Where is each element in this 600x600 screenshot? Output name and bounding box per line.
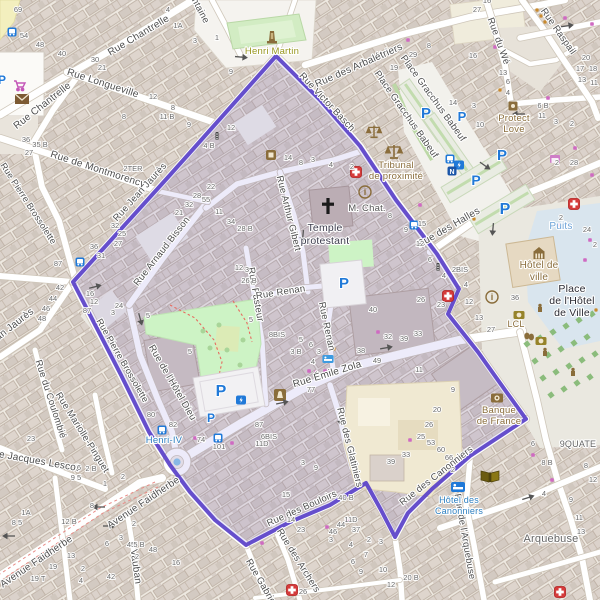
svg-text:17: 17 [576, 64, 584, 73]
svg-text:Hôtel des: Hôtel des [439, 495, 479, 505]
svg-text:Tribunal: Tribunal [378, 160, 414, 171]
svg-text:80: 80 [147, 410, 155, 419]
svg-text:31: 31 [97, 251, 105, 260]
svg-text:14: 14 [284, 153, 292, 162]
svg-text:Temple: Temple [307, 222, 342, 234]
svg-text:10: 10 [476, 120, 484, 129]
svg-text:Love: Love [503, 124, 524, 135]
svg-text:87: 87 [83, 306, 91, 315]
svg-text:4: 4 [311, 357, 315, 366]
svg-text:87: 87 [255, 420, 263, 429]
svg-text:Place: Place [558, 283, 585, 295]
svg-text:48: 48 [149, 545, 157, 554]
svg-text:5 B: 5 B [133, 540, 144, 549]
svg-text:22: 22 [207, 182, 215, 191]
svg-text:8: 8 [584, 461, 588, 470]
svg-text:2: 2 [132, 519, 136, 528]
svg-text:21: 21 [98, 63, 106, 72]
svg-text:38: 38 [357, 346, 365, 355]
svg-text:42: 42 [107, 572, 115, 581]
svg-text:29: 29 [409, 50, 417, 59]
svg-text:9: 9 [314, 463, 318, 472]
svg-text:28: 28 [193, 191, 201, 200]
svg-text:12: 12 [90, 297, 98, 306]
svg-text:9: 9 [451, 385, 455, 394]
svg-text:37: 37 [352, 525, 360, 534]
svg-text:3: 3 [311, 155, 315, 164]
svg-text:13: 13 [577, 527, 585, 536]
svg-text:8: 8 [388, 211, 392, 220]
svg-text:12: 12 [416, 239, 424, 248]
svg-text:2: 2 [451, 465, 455, 474]
svg-text:4 B: 4 B [203, 141, 214, 150]
svg-text:6: 6 [77, 463, 81, 472]
svg-text:P: P [471, 172, 480, 188]
svg-text:15: 15 [282, 490, 290, 499]
svg-text:4: 4 [542, 489, 546, 498]
svg-text:2: 2 [570, 119, 574, 128]
svg-text:11: 11 [538, 111, 546, 120]
svg-text:LCL: LCL [507, 319, 524, 329]
svg-text:13: 13 [475, 313, 483, 322]
svg-text:3: 3 [554, 117, 558, 126]
svg-text:11D: 11D [344, 515, 358, 524]
svg-text:1A: 1A [173, 21, 182, 30]
svg-text:de l'Hôtel: de l'Hôtel [549, 295, 594, 307]
svg-text:39: 39 [400, 334, 408, 343]
svg-text:20 B: 20 B [403, 573, 418, 582]
svg-text:Canonniers: Canonniers [435, 506, 483, 516]
svg-text:66: 66 [445, 453, 453, 462]
svg-text:de Ville: de Ville [554, 307, 590, 319]
svg-text:11D: 11D [255, 439, 269, 448]
svg-text:8 5: 8 5 [12, 518, 22, 527]
svg-text:35 B: 35 B [32, 140, 47, 149]
svg-text:26: 26 [425, 420, 433, 429]
svg-text:9QUATE: 9QUATE [560, 439, 597, 449]
svg-text:2: 2 [593, 240, 597, 249]
svg-text:3: 3 [379, 537, 383, 546]
svg-text:12: 12 [227, 123, 235, 132]
svg-text:5: 5 [146, 311, 150, 320]
svg-text:Protect: Protect [498, 113, 530, 124]
svg-text:15: 15 [418, 219, 426, 228]
svg-text:2TER: 2TER [123, 164, 143, 173]
svg-text:40: 40 [369, 305, 377, 314]
svg-text:P: P [500, 201, 511, 218]
svg-text:25: 25 [417, 432, 425, 441]
svg-text:19 T: 19 T [31, 574, 46, 583]
svg-text:9: 9 [187, 120, 191, 129]
svg-text:33: 33 [402, 450, 410, 459]
svg-text:4: 4 [349, 540, 353, 549]
svg-text:9: 9 [229, 67, 233, 76]
svg-text:16: 16 [483, 0, 491, 5]
svg-text:2 B: 2 B [85, 464, 96, 473]
svg-text:3: 3 [245, 265, 249, 274]
svg-text:3: 3 [193, 36, 197, 45]
svg-text:13: 13 [499, 68, 507, 77]
svg-text:P: P [216, 383, 227, 400]
svg-text:3: 3 [317, 347, 321, 356]
svg-text:P: P [421, 105, 431, 122]
svg-text:27: 27 [25, 148, 33, 157]
svg-text:12: 12 [387, 580, 395, 589]
svg-text:12: 12 [465, 297, 473, 306]
svg-text:28 B: 28 B [237, 224, 252, 233]
svg-text:82: 82 [169, 420, 177, 429]
svg-text:2: 2 [367, 535, 371, 544]
svg-text:5: 5 [188, 347, 192, 356]
svg-text:P: P [458, 109, 467, 124]
svg-text:19: 19 [390, 63, 398, 72]
svg-text:4: 4 [329, 160, 333, 169]
svg-text:9: 9 [569, 495, 573, 504]
svg-text:2: 2 [350, 162, 354, 171]
svg-text:12: 12 [589, 475, 597, 484]
svg-text:11: 11 [415, 365, 423, 374]
svg-text:P: P [0, 73, 6, 87]
svg-text:3 B: 3 B [290, 347, 301, 356]
svg-text:1: 1 [215, 33, 219, 42]
svg-text:46: 46 [329, 527, 337, 536]
svg-text:12 B: 12 B [61, 517, 76, 526]
svg-text:i: i [364, 187, 367, 197]
svg-text:3: 3 [472, 101, 476, 110]
svg-text:48: 48 [38, 314, 46, 323]
svg-text:1: 1 [103, 479, 107, 488]
svg-text:6: 6 [351, 557, 355, 566]
svg-text:11: 11 [575, 513, 583, 522]
svg-text:3: 3 [301, 458, 305, 467]
svg-text:Henri Martin: Henri Martin [245, 46, 299, 57]
svg-text:87: 87 [54, 259, 62, 268]
svg-text:11: 11 [215, 207, 223, 216]
svg-text:8: 8 [171, 103, 175, 112]
svg-text:P: P [339, 275, 349, 292]
svg-text:2BIS: 2BIS [452, 265, 468, 274]
svg-text:6: 6 [309, 340, 313, 349]
svg-text:2: 2 [121, 472, 125, 481]
svg-text:77: 77 [307, 385, 315, 394]
svg-text:N: N [449, 169, 454, 176]
svg-text:2: 2 [559, 213, 563, 222]
svg-text:4: 4 [79, 576, 83, 585]
svg-text:ville: ville [530, 272, 548, 283]
svg-text:8: 8 [299, 158, 303, 167]
svg-text:13: 13 [578, 75, 586, 84]
svg-text:13: 13 [67, 551, 75, 560]
svg-text:de proximité: de proximité [369, 171, 423, 182]
svg-text:7: 7 [364, 550, 368, 559]
svg-text:32: 32 [384, 332, 392, 341]
svg-text:14: 14 [449, 98, 457, 107]
svg-text:18: 18 [589, 64, 597, 73]
svg-text:69: 69 [14, 5, 22, 14]
svg-text:53: 53 [427, 438, 435, 447]
svg-text:36: 36 [90, 242, 98, 251]
svg-text:5: 5 [249, 315, 253, 324]
svg-text:55: 55 [202, 195, 210, 204]
svg-text:M. Chat.: M. Chat. [348, 203, 386, 214]
svg-text:19: 19 [49, 562, 57, 571]
svg-text:33: 33 [414, 329, 422, 338]
svg-text:9: 9 [359, 567, 363, 576]
svg-text:11 B: 11 B [160, 112, 175, 121]
svg-text:39: 39 [387, 457, 395, 466]
svg-text:101: 101 [213, 442, 226, 451]
svg-text:6: 6 [506, 77, 510, 86]
svg-text:Arquebuse: Arquebuse [523, 533, 578, 545]
svg-text:48: 48 [36, 40, 44, 49]
svg-text:Banque: Banque [482, 405, 516, 416]
svg-text:44: 44 [49, 294, 57, 303]
svg-text:16: 16 [172, 558, 180, 567]
svg-text:24: 24 [115, 301, 123, 310]
svg-text:de France: de France [477, 416, 522, 427]
svg-text:9: 9 [404, 225, 408, 234]
svg-text:49: 49 [373, 356, 381, 365]
svg-text:14: 14 [287, 515, 295, 524]
svg-text:4: 4 [506, 88, 510, 97]
svg-text:46: 46 [42, 304, 50, 313]
svg-text:25: 25 [118, 229, 126, 238]
svg-text:20: 20 [582, 53, 590, 62]
svg-text:i: i [491, 292, 494, 302]
svg-text:8: 8 [427, 41, 431, 50]
svg-text:1A: 1A [21, 508, 30, 517]
svg-text:8: 8 [122, 112, 126, 121]
svg-text:protestant: protestant [301, 235, 350, 247]
svg-text:3: 3 [329, 535, 333, 544]
svg-text:8BIS: 8BIS [269, 330, 285, 339]
svg-text:54: 54 [20, 31, 28, 40]
svg-text:4: 4 [442, 271, 446, 280]
svg-text:P: P [497, 147, 507, 164]
svg-text:Hôtel de: Hôtel de [520, 260, 559, 271]
svg-text:2: 2 [81, 564, 85, 573]
svg-text:44: 44 [337, 520, 345, 529]
svg-text:16: 16 [469, 51, 477, 60]
svg-text:36: 36 [22, 135, 30, 144]
svg-text:8 B: 8 B [541, 458, 552, 467]
svg-text:Henri-IV: Henri-IV [146, 435, 183, 446]
svg-text:10: 10 [379, 565, 387, 574]
svg-text:27: 27 [487, 325, 495, 334]
svg-text:74: 74 [197, 435, 205, 444]
svg-text:26 B: 26 B [241, 276, 256, 285]
svg-text:26: 26 [417, 295, 425, 304]
svg-text:32: 32 [185, 200, 193, 209]
svg-text:6 B: 6 B [537, 101, 548, 110]
svg-text:27: 27 [114, 239, 122, 248]
svg-text:4: 4 [166, 5, 170, 14]
svg-text:6: 6 [531, 439, 535, 448]
svg-text:42: 42 [56, 283, 64, 292]
svg-text:28: 28 [570, 158, 578, 167]
svg-text:Puits: Puits [549, 221, 572, 232]
svg-text:3: 3 [119, 533, 123, 542]
svg-text:P: P [207, 411, 215, 425]
svg-text:40: 40 [58, 49, 66, 58]
svg-text:6: 6 [105, 539, 109, 548]
svg-text:11: 11 [590, 78, 598, 87]
svg-text:34: 34 [227, 217, 235, 226]
svg-text:12: 12 [149, 92, 157, 101]
svg-text:21: 21 [175, 208, 183, 217]
svg-text:23: 23 [437, 300, 445, 309]
svg-text:8: 8 [90, 501, 94, 510]
svg-text:23: 23 [297, 525, 305, 534]
svg-text:5: 5 [299, 335, 303, 344]
svg-text:12: 12 [235, 263, 243, 272]
svg-text:36: 36 [511, 293, 519, 302]
svg-text:2: 2 [555, 158, 559, 167]
svg-text:4: 4 [464, 280, 468, 289]
svg-text:23: 23 [27, 434, 35, 443]
svg-text:40 B: 40 B [338, 493, 353, 502]
svg-text:6: 6 [428, 255, 432, 264]
svg-text:9 5: 9 5 [71, 473, 81, 482]
svg-text:2: 2 [135, 552, 139, 561]
svg-text:27: 27 [473, 5, 481, 14]
svg-text:24: 24 [583, 225, 591, 234]
svg-text:26: 26 [299, 587, 307, 596]
svg-text:20: 20 [433, 405, 441, 414]
